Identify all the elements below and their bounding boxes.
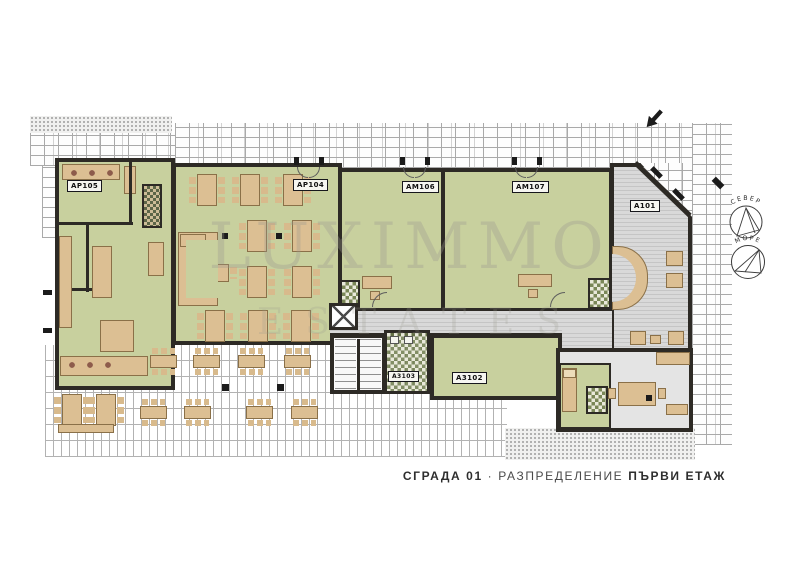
lobby-armchair bbox=[668, 331, 684, 345]
column bbox=[276, 233, 282, 239]
compass-sea-circle bbox=[732, 246, 765, 279]
office-desk bbox=[618, 382, 656, 406]
office-column bbox=[646, 395, 652, 401]
toilet-fixture bbox=[390, 336, 399, 344]
terrace-table bbox=[62, 394, 82, 426]
door-jamb bbox=[425, 157, 430, 165]
elevator bbox=[329, 303, 358, 330]
kitchen-wall bbox=[86, 224, 89, 292]
office-wc bbox=[586, 386, 608, 414]
room-label-a101: А101 bbox=[630, 200, 660, 212]
stair-flight-right bbox=[360, 339, 381, 390]
kitchen-bath bbox=[142, 184, 162, 228]
kitchen-counter-bottom bbox=[60, 356, 148, 376]
dining-table bbox=[197, 174, 217, 206]
kitchen-wall bbox=[55, 222, 133, 225]
dining-table bbox=[247, 266, 267, 298]
door-jamb bbox=[537, 157, 542, 165]
compass-north-label-text: СЕВЕР bbox=[730, 195, 763, 206]
dining-table bbox=[247, 220, 267, 252]
kitchen-stove-counter bbox=[62, 164, 120, 180]
lobby-side-table bbox=[650, 335, 661, 344]
terrace-table bbox=[184, 406, 211, 419]
backroom-pillow bbox=[563, 369, 576, 378]
corridor-junction bbox=[562, 330, 612, 350]
terrace-table bbox=[246, 406, 273, 419]
dining-table bbox=[292, 266, 312, 298]
am107-chair bbox=[528, 289, 538, 298]
paving-marker bbox=[43, 290, 52, 295]
dining-table bbox=[248, 310, 268, 342]
title-building: СГРАДА 01 bbox=[403, 469, 483, 483]
kitchen-wall bbox=[129, 158, 132, 225]
stair-rail bbox=[357, 339, 360, 390]
terrace-bench bbox=[58, 424, 114, 433]
paving-topleft-stipple bbox=[30, 116, 172, 133]
door-jamb bbox=[400, 157, 405, 165]
dining-table bbox=[292, 220, 312, 252]
kitchen-prep-table bbox=[100, 320, 134, 352]
lobby-armchair bbox=[666, 273, 683, 288]
room-label-a3103: А3103 bbox=[388, 371, 419, 382]
stair-flight-left bbox=[335, 339, 356, 390]
floor-plan-canvas: LUXIMMO ESTATES АР105 АР104 АМ106 АМ107 … bbox=[0, 0, 800, 565]
office-chair bbox=[608, 388, 616, 399]
terrace-table bbox=[193, 355, 220, 368]
door-jamb bbox=[294, 157, 299, 165]
office-cabinet bbox=[666, 404, 688, 415]
dining-table bbox=[205, 310, 225, 342]
room-label-am106: АМ106 bbox=[402, 181, 439, 193]
room-label-ar105: АР105 bbox=[67, 180, 102, 192]
kitchen-fridge bbox=[148, 242, 164, 276]
office-sidedesk bbox=[656, 352, 690, 365]
title-separator: · bbox=[488, 469, 494, 483]
terrace-table bbox=[238, 355, 265, 368]
terrace-post bbox=[277, 384, 284, 391]
kitchen-counter-left bbox=[59, 236, 72, 328]
toilet-fixture bbox=[404, 336, 413, 344]
terrace-post bbox=[222, 384, 229, 391]
terrace-table bbox=[291, 406, 318, 419]
kitchen-island bbox=[92, 246, 112, 298]
compass-north-needle bbox=[737, 208, 759, 236]
office-chair bbox=[658, 388, 666, 399]
am107-wc bbox=[588, 278, 611, 309]
paving-marker bbox=[43, 328, 52, 333]
compass-north-label: СЕВЕР bbox=[730, 195, 763, 206]
column bbox=[222, 233, 228, 239]
lobby-armchair bbox=[666, 251, 683, 266]
room-label-ar104: АР104 bbox=[293, 179, 328, 191]
title-layout-word: РАЗПРЕДЕЛЕНИЕ bbox=[498, 469, 623, 483]
door-jamb bbox=[319, 157, 324, 165]
room-label-a3102: А3102 bbox=[452, 372, 487, 384]
dining-table bbox=[291, 310, 311, 342]
terrace-table bbox=[284, 355, 311, 368]
terrace-bottomright-stipple bbox=[505, 428, 695, 460]
compass-group: СЕВЕР МОРЕ bbox=[698, 172, 798, 302]
terrace-table bbox=[150, 355, 177, 368]
room-label-am107: АМ107 bbox=[512, 181, 549, 193]
title-block: СГРАДА 01 · РАЗПРЕДЕЛЕНИЕ ПЪРВИ ЕТАЖ bbox=[320, 469, 726, 483]
am106-desk bbox=[362, 276, 392, 289]
dining-table bbox=[240, 174, 260, 206]
terrace-table bbox=[96, 394, 116, 426]
bar-counter-inner bbox=[186, 240, 218, 298]
terrace-table bbox=[140, 406, 167, 419]
lobby-armchair bbox=[630, 331, 646, 345]
paving-left-strip bbox=[42, 166, 56, 238]
door-jamb bbox=[512, 157, 517, 165]
am107-desk bbox=[518, 274, 552, 287]
room-a3102 bbox=[430, 334, 562, 400]
title-floor: ПЪРВИ ЕТАЖ bbox=[628, 469, 726, 483]
paving-top-band bbox=[175, 123, 731, 168]
